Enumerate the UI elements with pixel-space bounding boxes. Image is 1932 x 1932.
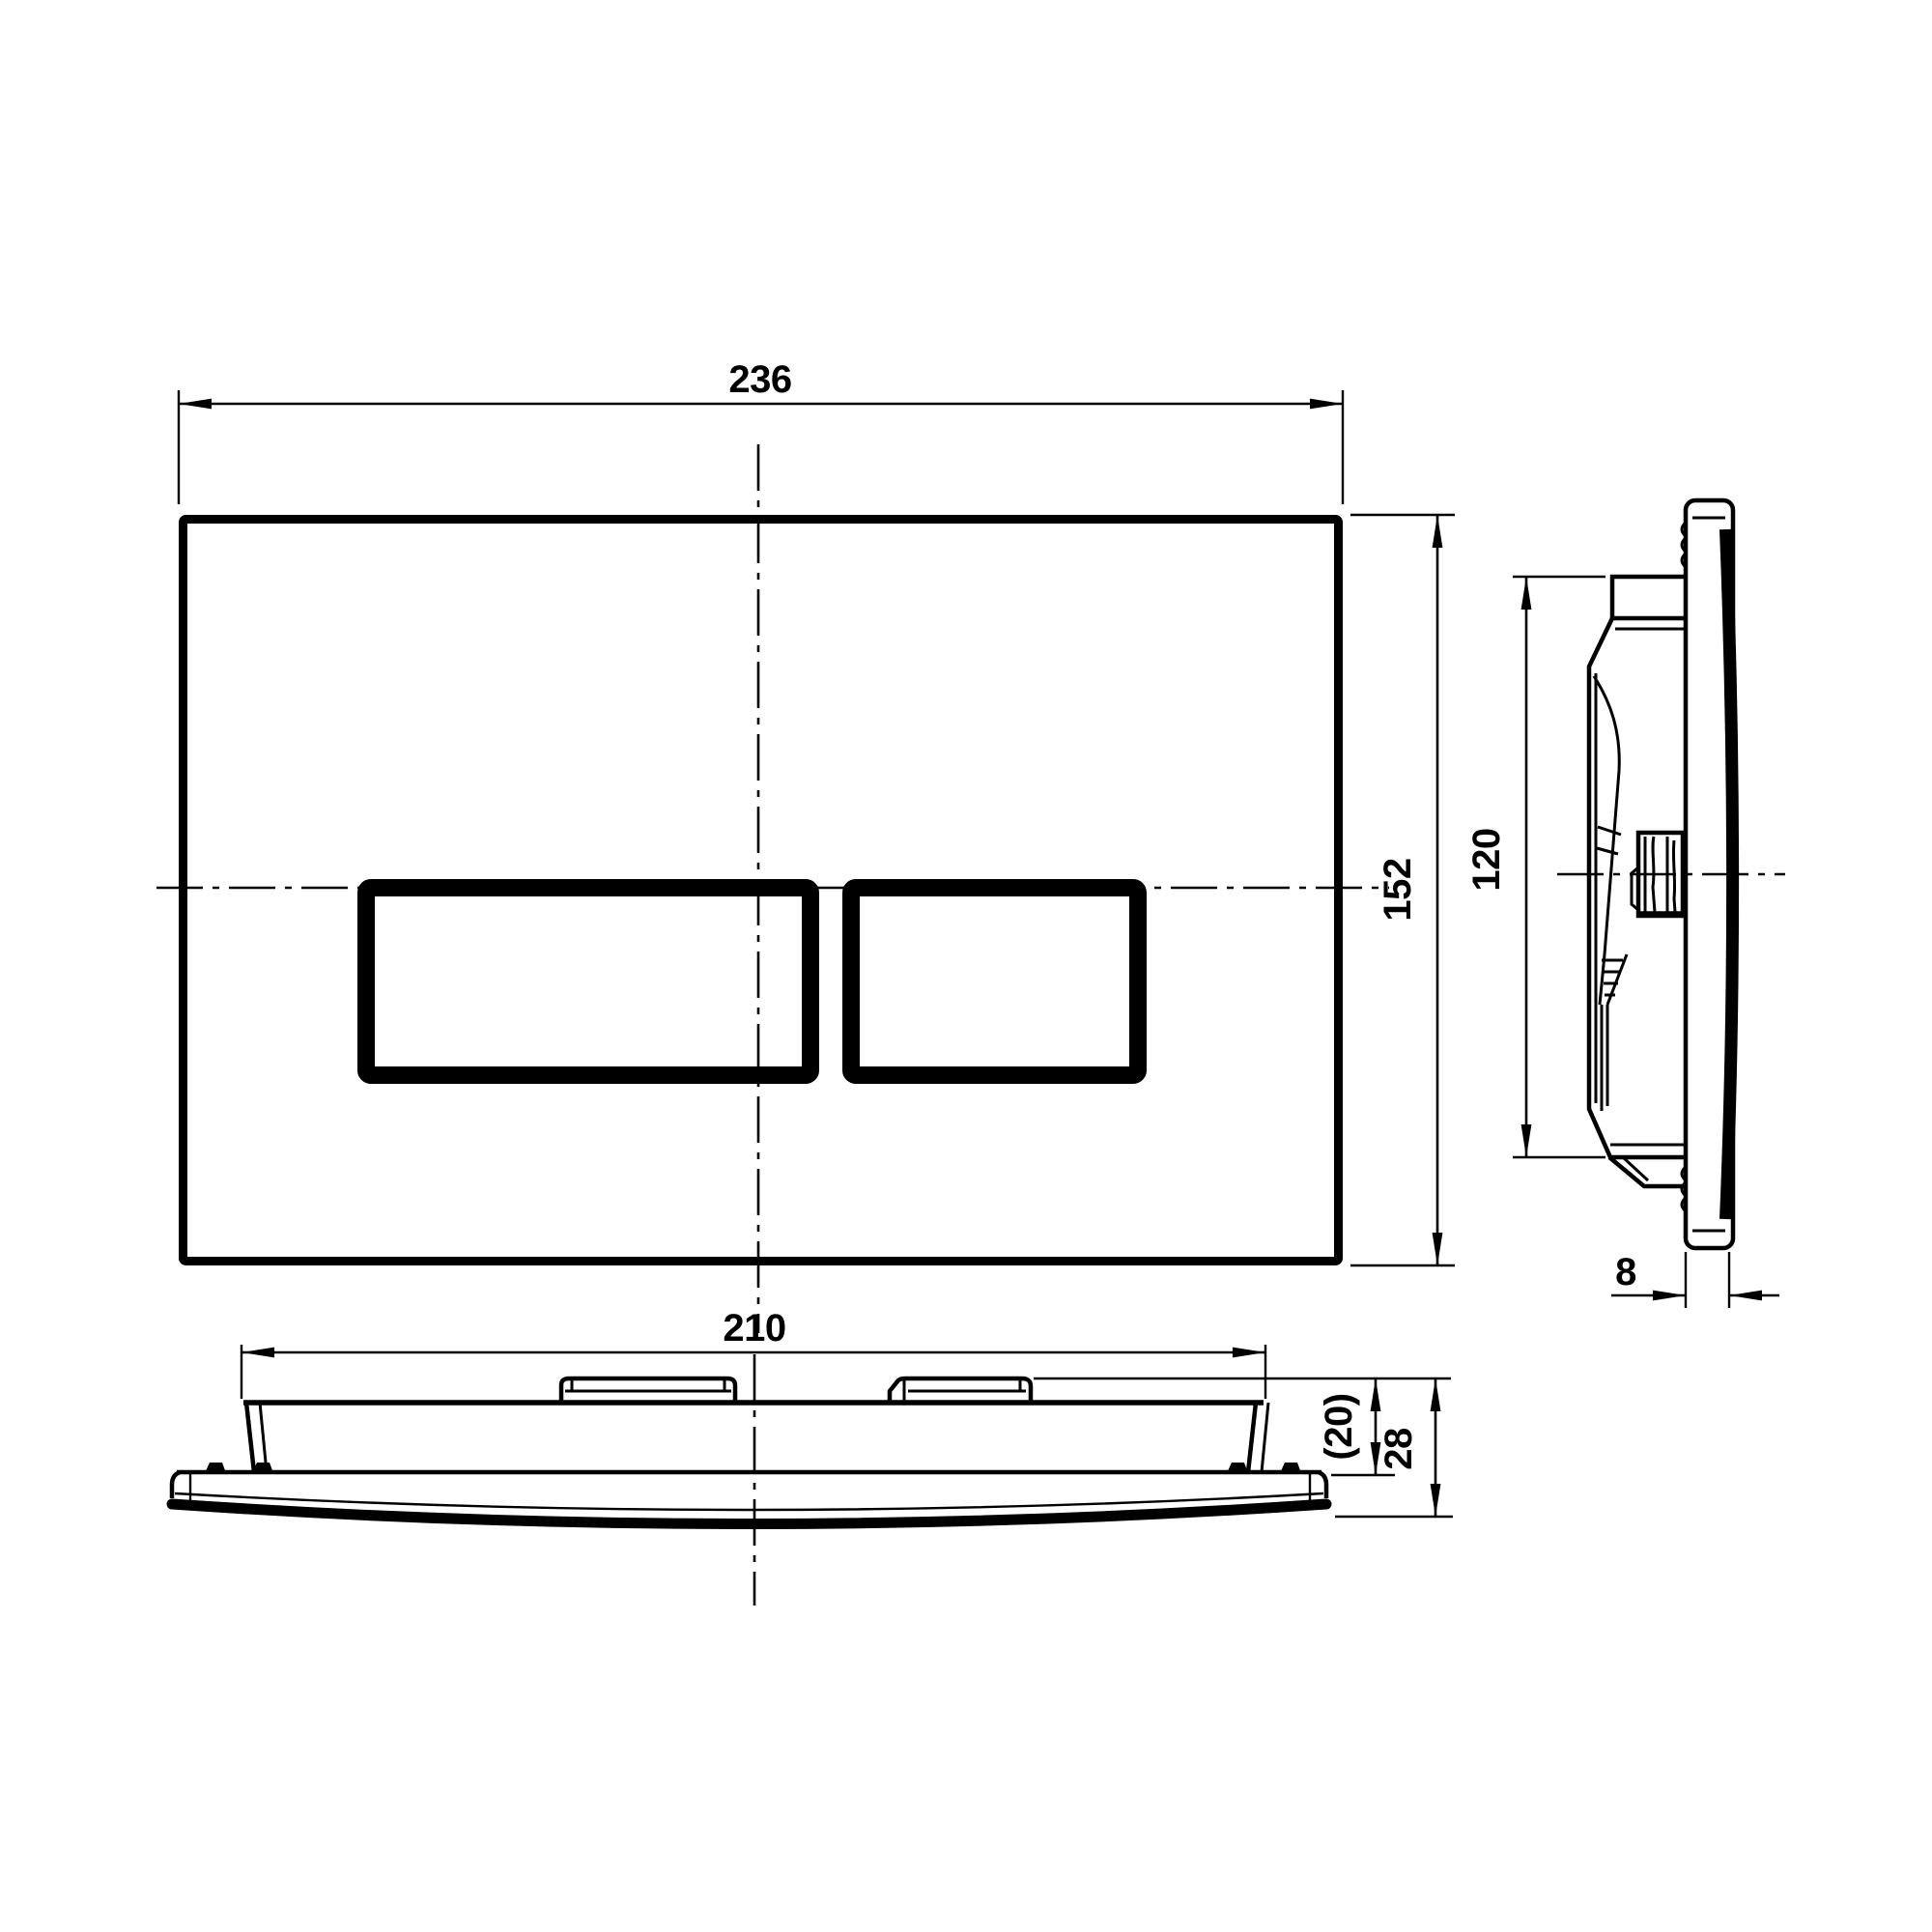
bottom-button-left [561,1378,735,1403]
front-button-left-outline [366,888,810,1075]
frame-bottom-lip [1609,1157,1686,1186]
side-height-dimension: 120 [1465,577,1605,1157]
side-thickness-dimension: 8 [1611,1251,1779,1308]
front-height-dimension: 152 [1350,515,1455,1265]
frame-wedge [1600,954,1627,1005]
side-thickness-label: 8 [1615,1251,1636,1293]
right-foot-inner [1262,1403,1268,1472]
button-end-caps [572,1380,724,1391]
left-foot [246,1403,254,1472]
side-plate-face [1726,529,1733,1219]
front-view: 236 152 [156,358,1455,1333]
bottom-total-depth-label: 28 [1378,1428,1420,1470]
side-height-label: 120 [1465,828,1508,891]
front-width-dimension: 236 [179,358,1343,504]
front-button-right-outline [851,888,1138,1075]
base-bottom-edge [172,1504,1326,1524]
right-foot [1248,1403,1256,1472]
front-width-label: 236 [728,358,791,401]
side-view: 120 8 [1465,500,1785,1308]
frame-funnel-curve [1594,676,1619,954]
technical-drawing-canvas: 236 152 [0,0,1932,1932]
bottom-button-right [890,1378,1031,1403]
left-foot-inner [260,1403,267,1472]
frame-fold-lines [1597,827,1621,854]
bottom-inner-depth-label: (20) [1318,1393,1360,1460]
bottom-base-flange [172,1472,1326,1524]
frame-top-lip [1612,577,1686,618]
bottom-width-label: 210 [723,1307,785,1350]
bottom-view: 210 (20) 28 [172,1307,1453,1605]
frame-lower-ribs [1602,1005,1607,1111]
base-bottom-contour [175,1493,1323,1510]
front-height-label: 152 [1377,858,1419,921]
